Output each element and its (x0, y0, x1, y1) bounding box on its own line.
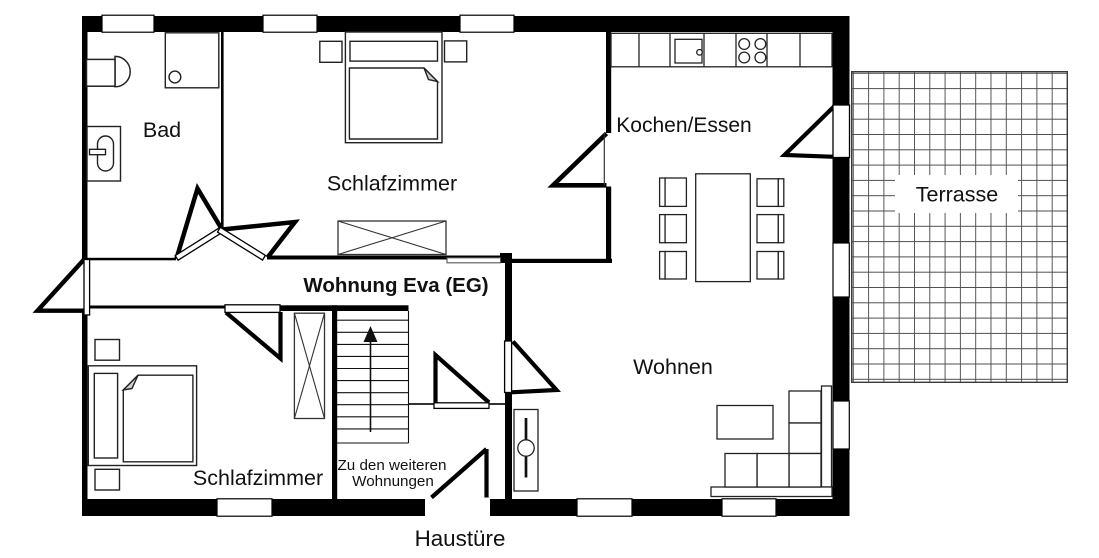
svg-text:Wohnen: Wohnen (633, 355, 713, 379)
svg-text:Wohnungen: Wohnungen (352, 473, 434, 490)
svg-text:Schlafzimmer: Schlafzimmer (327, 172, 457, 196)
svg-text:Haustüre: Haustüre (415, 526, 506, 551)
svg-text:Bad: Bad (143, 118, 181, 142)
svg-text:Schlafzimmer: Schlafzimmer (193, 466, 323, 490)
svg-text:Terrasse: Terrasse (916, 183, 998, 207)
svg-text:Kochen/Essen: Kochen/Essen (616, 114, 751, 137)
svg-text:Zu den weiteren: Zu den weiteren (338, 457, 447, 474)
svg-text:Wohnung Eva (EG): Wohnung Eva (EG) (303, 274, 488, 297)
